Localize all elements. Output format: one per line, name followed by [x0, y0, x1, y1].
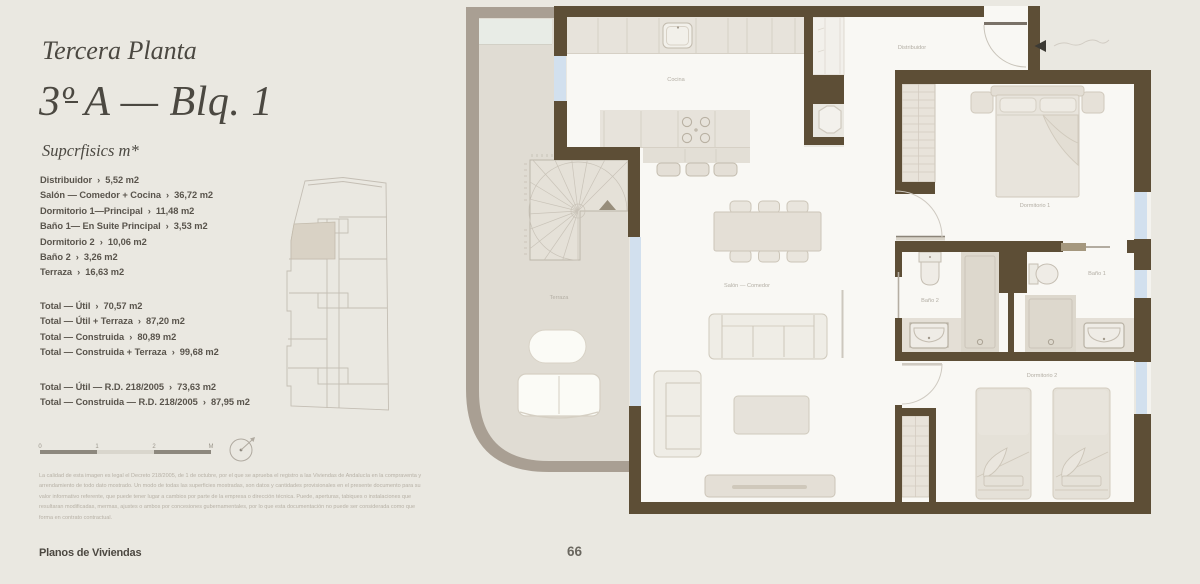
svg-text:Baño 2: Baño 2: [921, 298, 939, 304]
svg-text:Salón — Comedor: Salón — Comedor: [724, 283, 770, 289]
svg-text:1: 1: [95, 444, 99, 450]
svg-text:2: 2: [152, 444, 156, 450]
svg-text:0: 0: [38, 444, 42, 450]
svg-text:Baño 1: Baño 1: [1088, 271, 1106, 277]
svg-text:Distribuidor: Distribuidor: [898, 45, 926, 51]
svg-text:Terraza: Terraza: [550, 295, 570, 301]
svg-text:Dormitorio 2: Dormitorio 2: [1027, 373, 1057, 379]
svg-text:Cocina: Cocina: [667, 77, 685, 83]
svg-text:M: M: [209, 444, 214, 450]
svg-text:Dormitorio 1: Dormitorio 1: [1020, 203, 1050, 209]
